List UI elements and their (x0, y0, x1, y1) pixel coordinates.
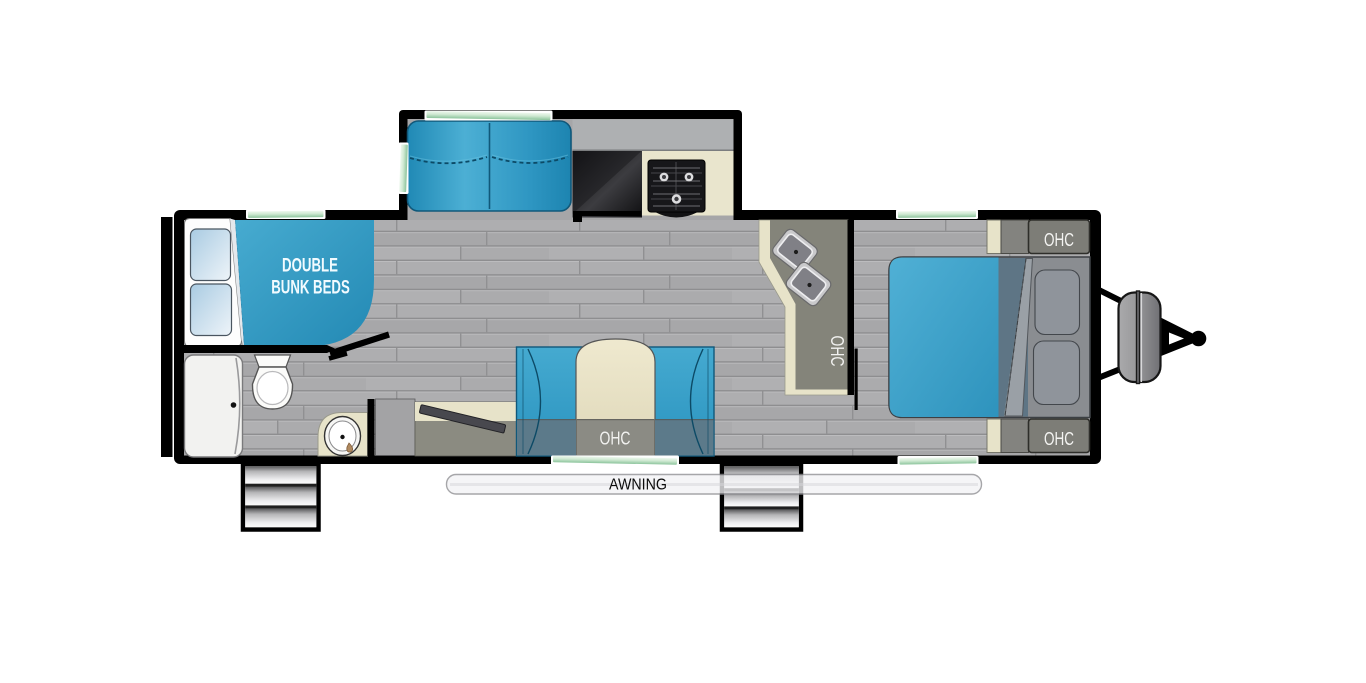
svg-text:OHC: OHC (1044, 230, 1074, 250)
svg-text:DOUBLE: DOUBLE (282, 256, 338, 277)
svg-text:AWNING: AWNING (609, 477, 667, 494)
svg-text:BUNK BEDS: BUNK BEDS (271, 278, 350, 299)
svg-text:OHC: OHC (600, 429, 631, 449)
svg-text:OHC: OHC (1044, 429, 1074, 449)
svg-text:OHC: OHC (827, 336, 847, 367)
